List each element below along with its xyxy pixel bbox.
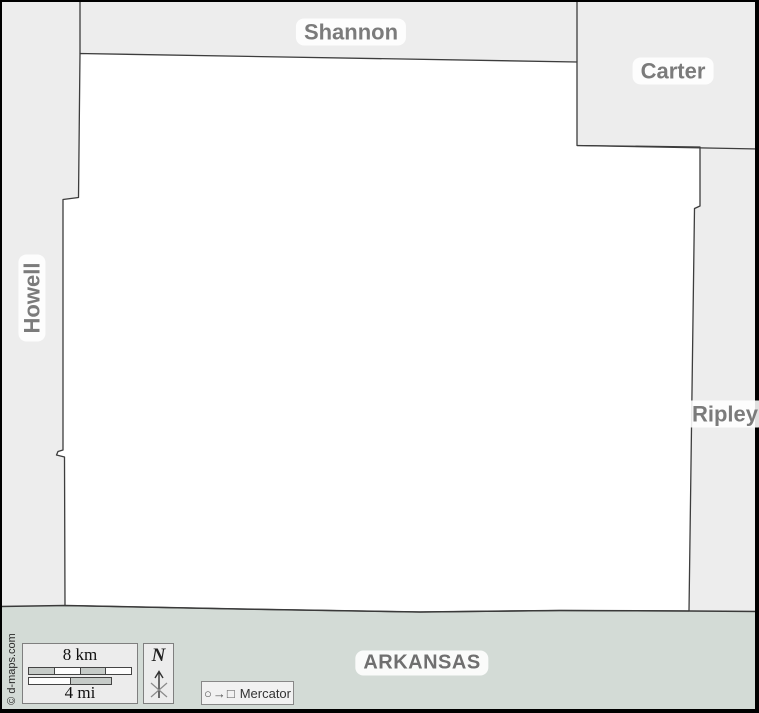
county-map-drawing (0, 0, 759, 713)
projection-name: Mercator (240, 686, 291, 701)
scale-mi-label: 4 mi (23, 683, 137, 703)
projection-box: ○→□ Mercator (201, 681, 294, 705)
frame-left (0, 0, 2, 713)
compass-box: N (143, 643, 174, 704)
frame-bottom (0, 709, 759, 713)
compass-north-label: N (144, 646, 173, 665)
scale-segment (106, 668, 131, 674)
county-label-howell: Howell (18, 255, 45, 342)
scale-segment (29, 668, 55, 674)
county-label-shannon: Shannon (296, 18, 406, 45)
scale-segment (55, 668, 81, 674)
copyright-text: © d-maps.com (6, 633, 18, 705)
north-arrow-icon (147, 665, 171, 701)
state-label-arkansas: ARKANSAS (355, 651, 488, 676)
map-canvas: Shannon Carter Howell Ripley ARKANSAS 8 … (0, 0, 759, 713)
scale-bar-box: 8 km 4 mi (22, 643, 138, 704)
frame-top (0, 0, 759, 2)
scale-bar-km (28, 667, 132, 675)
scale-km-label: 8 km (23, 645, 137, 665)
frame-right (755, 0, 759, 713)
county-label-ripley: Ripley (684, 400, 759, 427)
county-label-carter: Carter (633, 57, 714, 84)
scale-segment (81, 668, 107, 674)
projection-icon: ○→□ (204, 686, 236, 701)
